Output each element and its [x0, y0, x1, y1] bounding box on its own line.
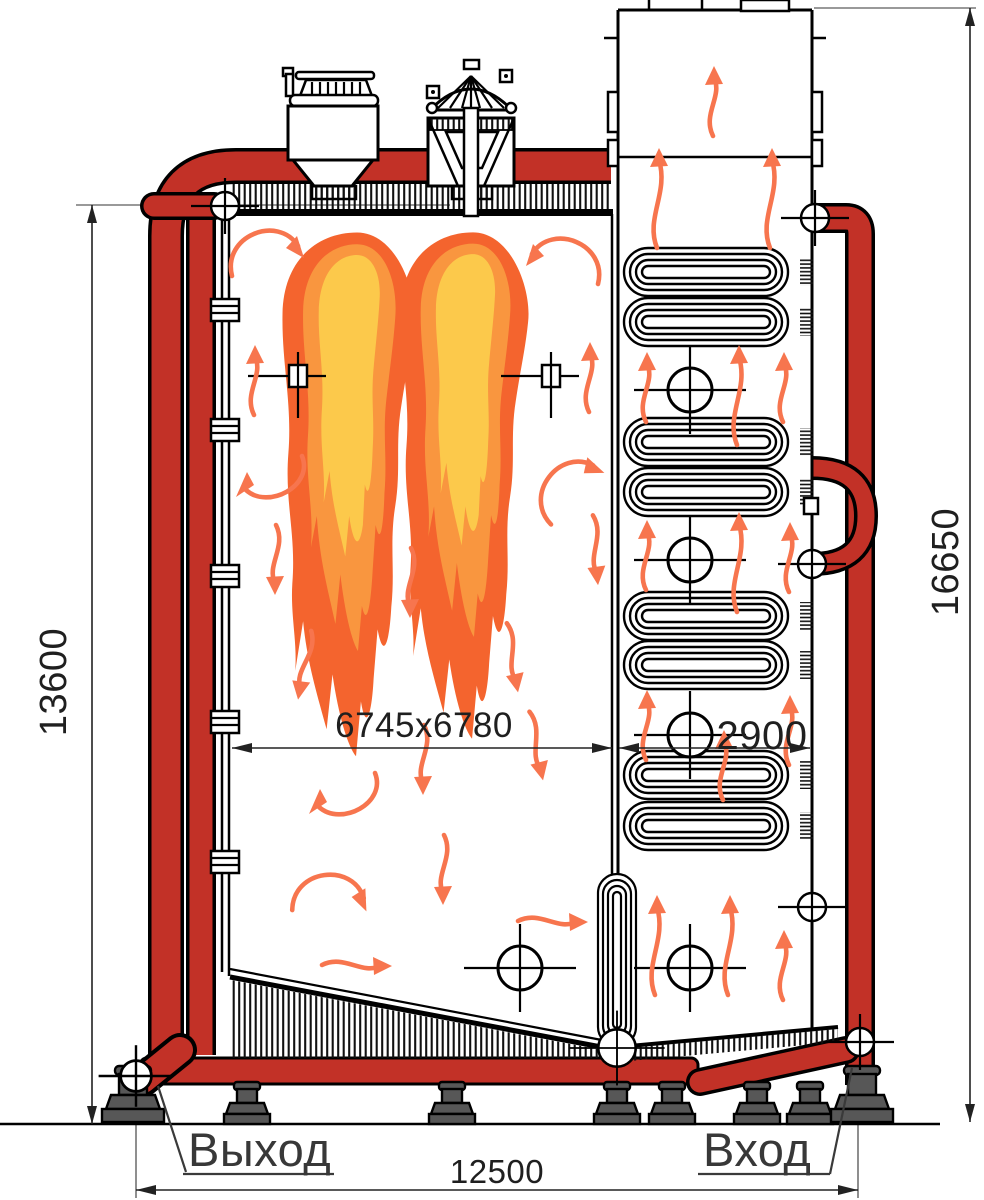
roof-fin-tubes — [231, 184, 612, 210]
dim-height-right: 16650 — [925, 508, 967, 616]
boiler-diagram: 13600 16650 6745x6780 2900 12500 Выход В… — [0, 0, 984, 1200]
burner-flames — [282, 232, 528, 756]
boiler-drawing: 13600 16650 6745x6780 2900 12500 Выход В… — [0, 0, 984, 1200]
dim-pass-width: 2900 — [717, 714, 808, 758]
floor-fin-tubes — [231, 980, 613, 1058]
furnace-roof — [229, 209, 613, 216]
right-riser-pipe — [818, 218, 860, 1085]
inlet-pedestal — [831, 1066, 893, 1122]
dim-height-left: 13600 — [33, 628, 75, 736]
riser-flange — [781, 190, 849, 246]
inlet-label: Вход — [703, 1123, 811, 1176]
outlet-label: Выход — [188, 1123, 331, 1176]
burner-left-box — [288, 106, 378, 160]
flame-left — [282, 233, 414, 757]
dim-overall-length: 12500 — [450, 1153, 544, 1190]
dim-furnace-size: 6745x6780 — [335, 706, 513, 745]
